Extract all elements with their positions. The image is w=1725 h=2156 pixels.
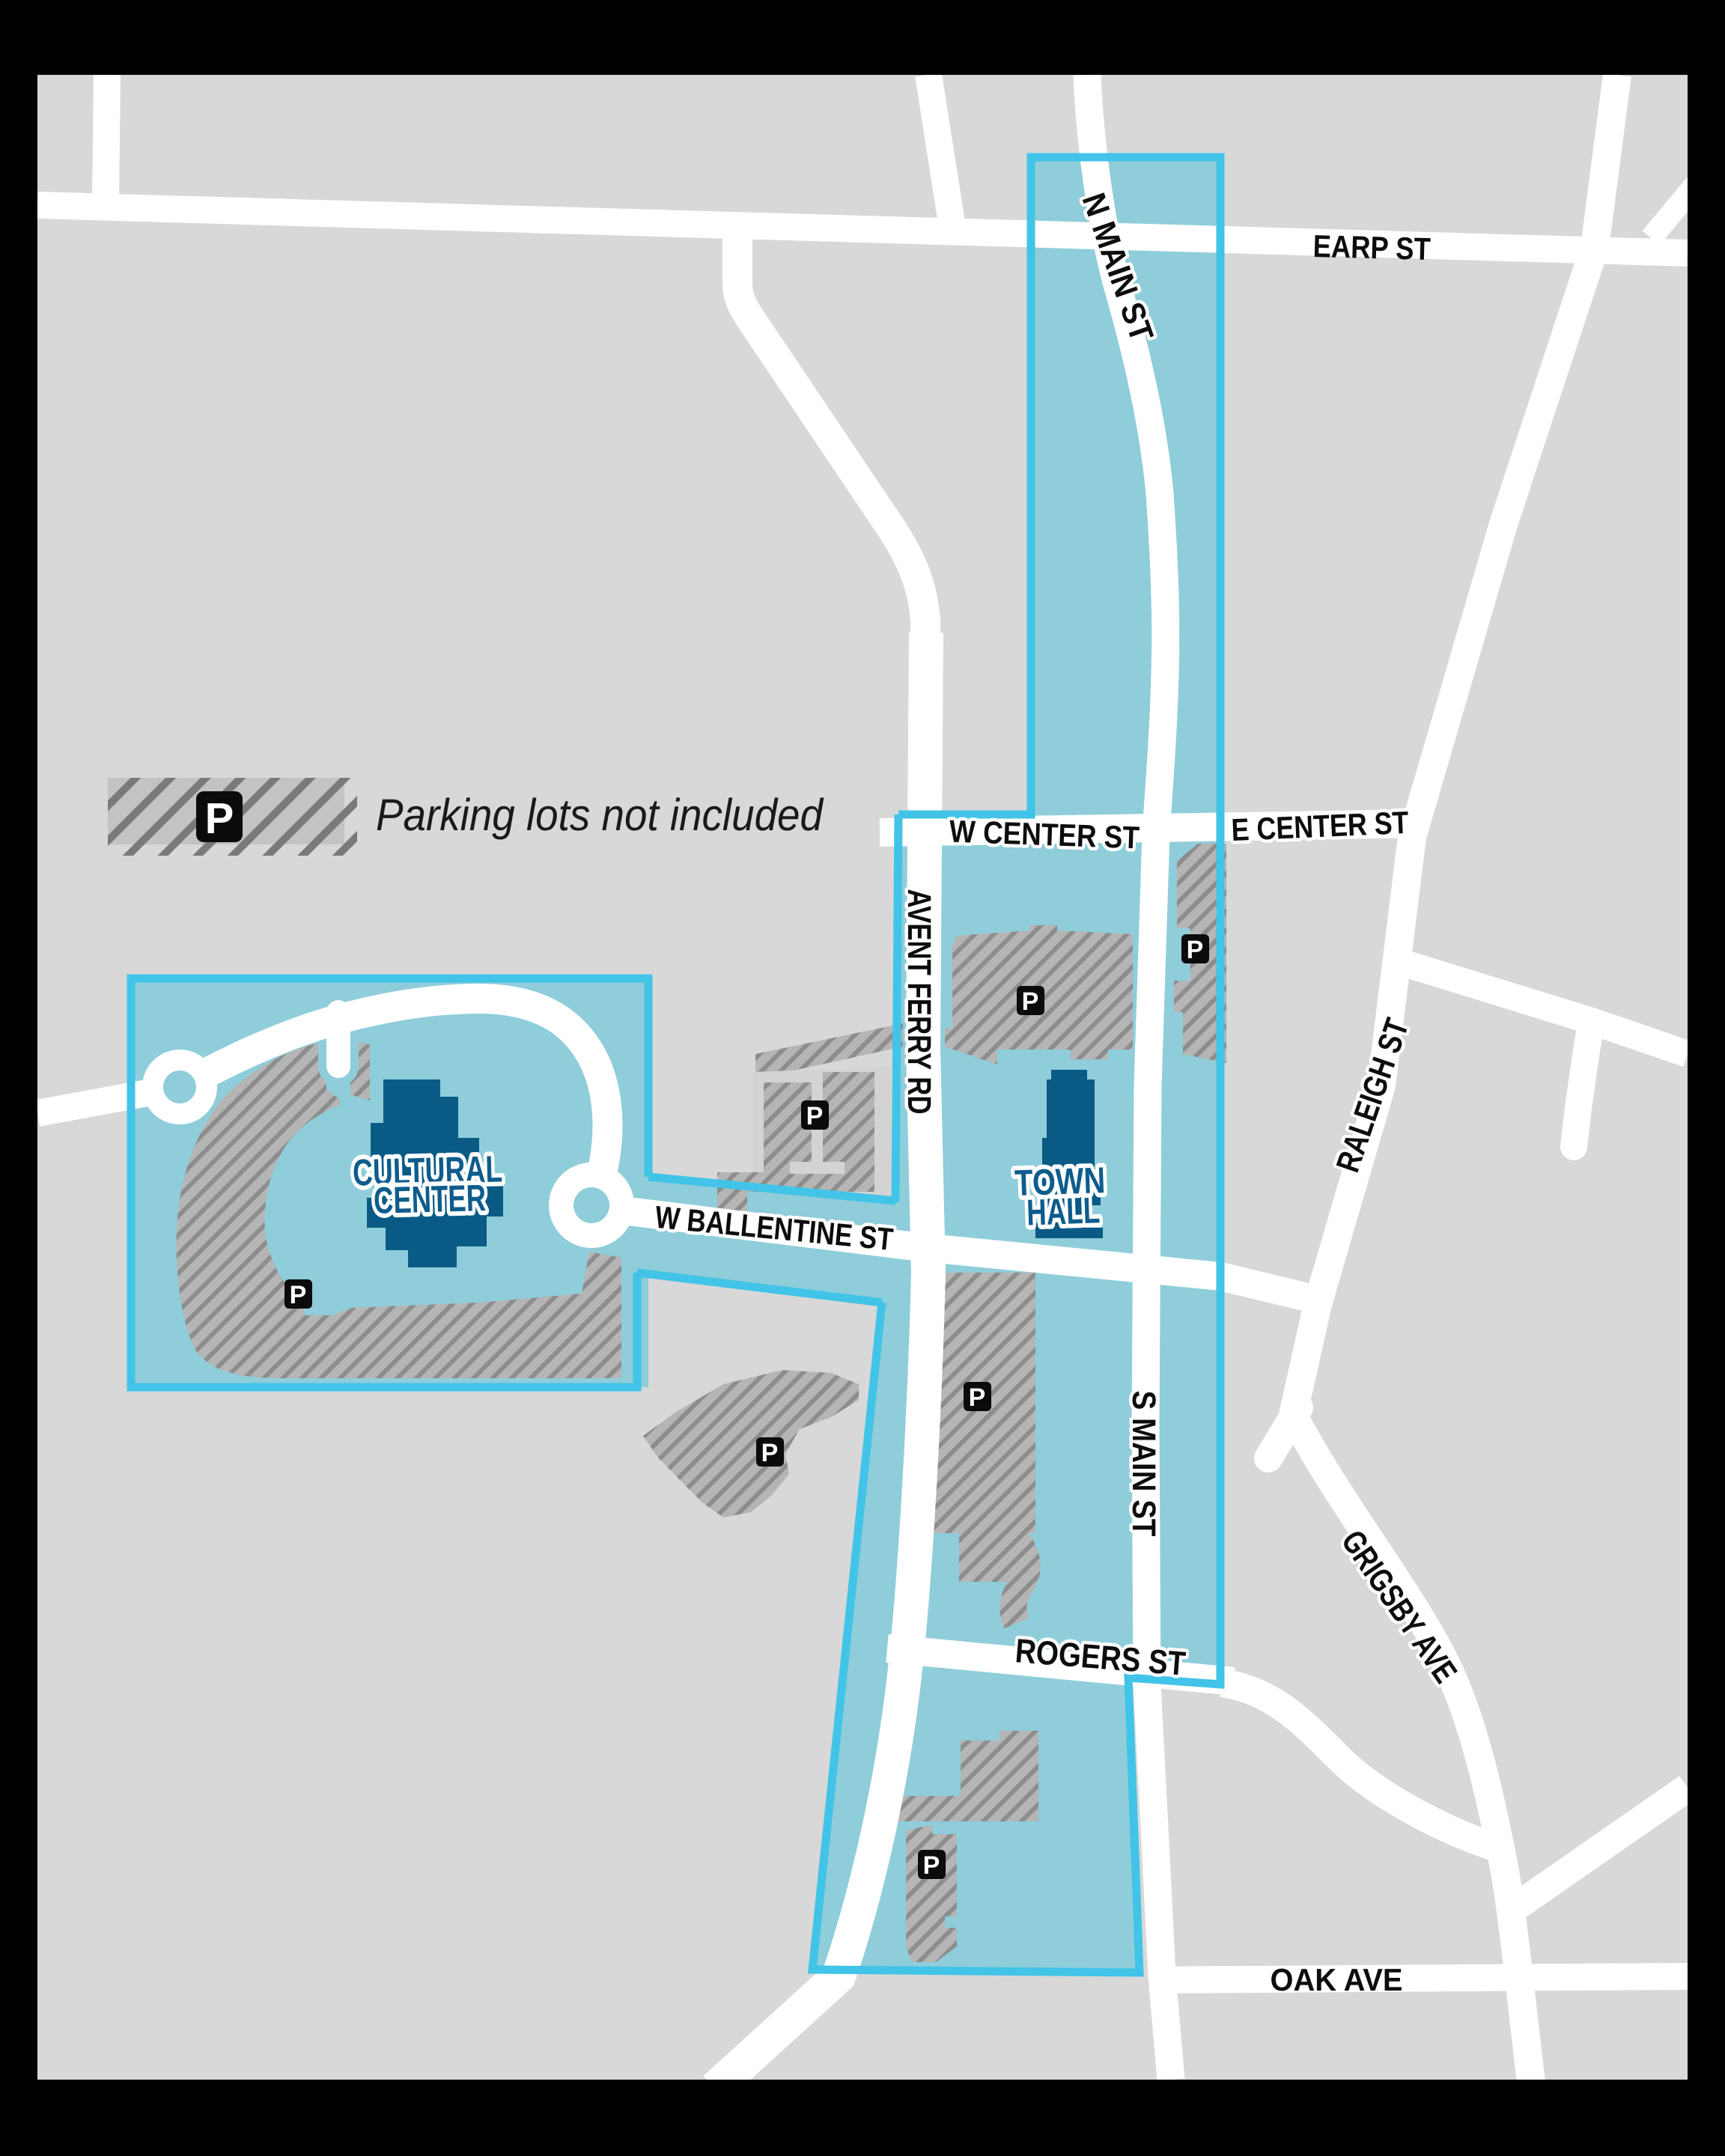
svg-text:P: P xyxy=(1187,936,1204,964)
svg-text:W CENTER ST: W CENTER ST xyxy=(949,814,1140,856)
svg-text:EARP ST: EARP ST xyxy=(1312,228,1431,267)
svg-text:P: P xyxy=(290,1281,307,1309)
svg-text:Parking lots not included: Parking lots not included xyxy=(376,790,824,840)
svg-text:CENTER: CENTER xyxy=(373,1177,486,1222)
svg-text:OAK AVE: OAK AVE xyxy=(1271,1962,1403,1997)
svg-text:S MAIN ST: S MAIN ST xyxy=(1125,1391,1162,1537)
svg-text:HALL: HALL xyxy=(1026,1190,1101,1233)
svg-text:AVENT FERRY RD: AVENT FERRY RD xyxy=(901,889,937,1115)
svg-text:P: P xyxy=(1022,987,1039,1016)
svg-text:P: P xyxy=(923,1851,940,1880)
svg-text:P: P xyxy=(806,1102,824,1130)
svg-text:P: P xyxy=(205,794,234,843)
svg-text:P: P xyxy=(761,1439,779,1467)
svg-text:P: P xyxy=(969,1383,986,1412)
